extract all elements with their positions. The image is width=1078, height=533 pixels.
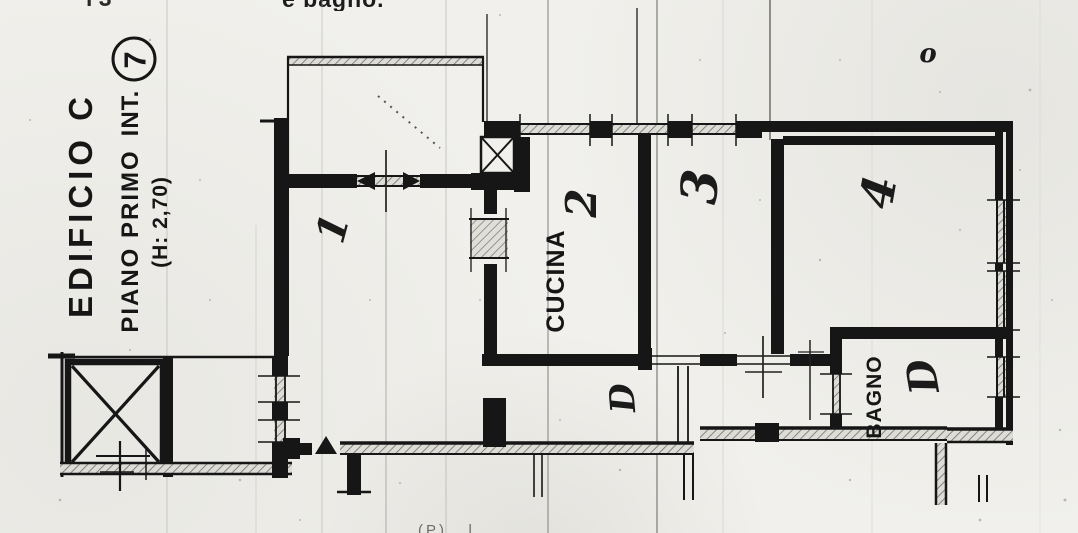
room4-label: 4 [849, 172, 908, 213]
room3-label: 3 [669, 167, 731, 207]
south-walls [288, 398, 1013, 505]
window-icon [692, 124, 736, 135]
room2-label: 2 [557, 188, 606, 218]
window-icon [996, 200, 1006, 263]
bathroom-door-icon [820, 374, 852, 414]
hallway-label: D [602, 381, 645, 415]
entrance-arrow-icon [315, 436, 337, 454]
scanned-floorplan-page: e bagno. l 3 [0, 0, 1078, 533]
window-icon [996, 271, 1006, 330]
pass-through-icon [469, 208, 509, 272]
door-opening-icon [652, 356, 700, 364]
int-number: 7 [118, 51, 153, 68]
room1-label: 1 [307, 209, 360, 248]
east-wall [987, 125, 1020, 445]
height-note: (H: 2,70) [149, 176, 172, 268]
window-icon [274, 376, 286, 402]
door-arrow-left-icon [357, 172, 375, 190]
leader-lines [487, 8, 637, 135]
building-title: EDIFICIO C [62, 92, 99, 318]
door-arrow-right-icon [403, 172, 420, 190]
elevator-shaft-icon [68, 362, 163, 466]
kitchen-label: CUCINA [542, 229, 570, 332]
floor-title: PIANO PRIMO [117, 149, 144, 332]
north-wall [484, 114, 1013, 146]
handwritten-o-mark: o [919, 39, 936, 69]
room-labels: 1 2 3 4 CUCINA BAGNO D D o [307, 39, 949, 439]
bath-door-label: D [896, 355, 949, 399]
window-icon [520, 124, 590, 135]
bathroom-label: BAGNO [863, 355, 886, 438]
window-icon [612, 124, 668, 135]
window-icon [996, 357, 1006, 397]
floor-plan-drawing: EDIFICIO C PIANO PRIMO INT. 7 (H: 2,70) [0, 0, 1078, 533]
int-label: INT. [117, 90, 144, 137]
stair-elevator-block [48, 352, 300, 491]
flue-shaft-icon [471, 137, 530, 192]
title-block: EDIFICIO C PIANO PRIMO INT. 7 (H: 2,70) [62, 38, 172, 333]
